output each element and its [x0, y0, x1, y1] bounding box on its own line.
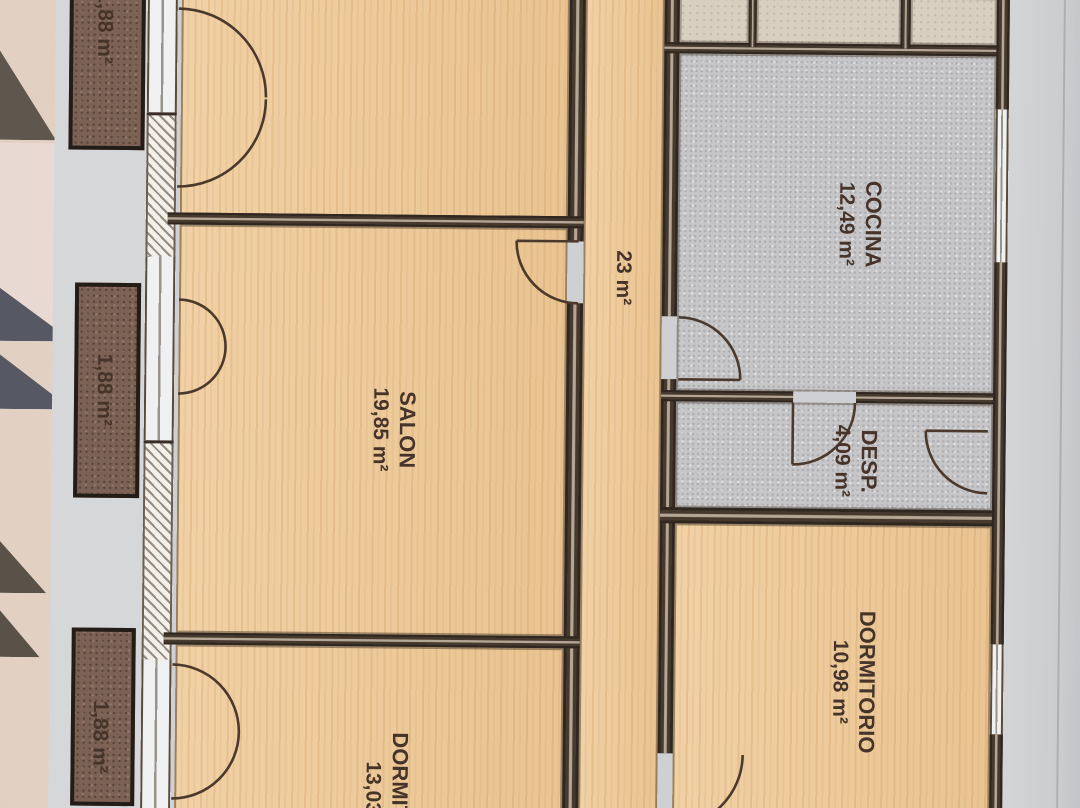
label-balcony-bottom: 1,88 m²: [87, 700, 113, 773]
room-label-dormitorio-right: DORMITORIO 10,98 m²: [826, 610, 880, 753]
double-door-salon-balcony: [178, 300, 226, 394]
room-name: COCINA: [859, 181, 887, 268]
door-swing-arcs: [0, 0, 1080, 808]
room-label-hallway: 23 m²: [610, 250, 636, 305]
room-name: DORMITORIO: [852, 611, 880, 754]
room-name: DESP.: [855, 425, 883, 498]
label-balcony-middle: 1,88 m²: [91, 354, 117, 427]
room-area: 19,85 m²: [367, 387, 393, 471]
room-label-dormitorio-bottom: DORMITORIO 13,03 m²: [359, 732, 413, 808]
room-area: 10,98 m²: [826, 610, 853, 753]
room-area: 1,88 m²: [91, 354, 117, 427]
room-area: 23 m²: [610, 250, 636, 305]
room-label-cocina: COCINA 12,49 m²: [833, 180, 886, 267]
door-dormitorio-right: [669, 754, 743, 808]
floor-plan-photo: COCINA 12,49 m² DESP. 4,09 m² DORMITORIO…: [0, 0, 1080, 808]
room-area: 12,49 m²: [833, 180, 859, 267]
room-area: 1,88 m²: [87, 700, 113, 773]
room-area: 1,88 m²: [91, 0, 117, 64]
room-area: 4,09 m²: [829, 425, 855, 498]
room-label-salon: SALON 19,85 m²: [367, 387, 420, 472]
label-balcony-top: 1,88 m²: [91, 0, 117, 64]
door-cocina: [678, 317, 741, 380]
room-label-despensa: DESP. 4,09 m²: [829, 425, 882, 498]
room-name: SALON: [393, 388, 421, 472]
door-despensa-right: [925, 431, 988, 494]
door-salon: [516, 241, 579, 304]
room-name: DORMITORIO: [385, 732, 413, 808]
room-area: 13,03 m²: [359, 732, 386, 808]
double-door-top-room: [177, 9, 267, 188]
double-door-dorm-bottom-balcony: [171, 664, 239, 799]
plan-sheet: COCINA 12,49 m² DESP. 4,09 m² DORMITORIO…: [0, 0, 1080, 808]
